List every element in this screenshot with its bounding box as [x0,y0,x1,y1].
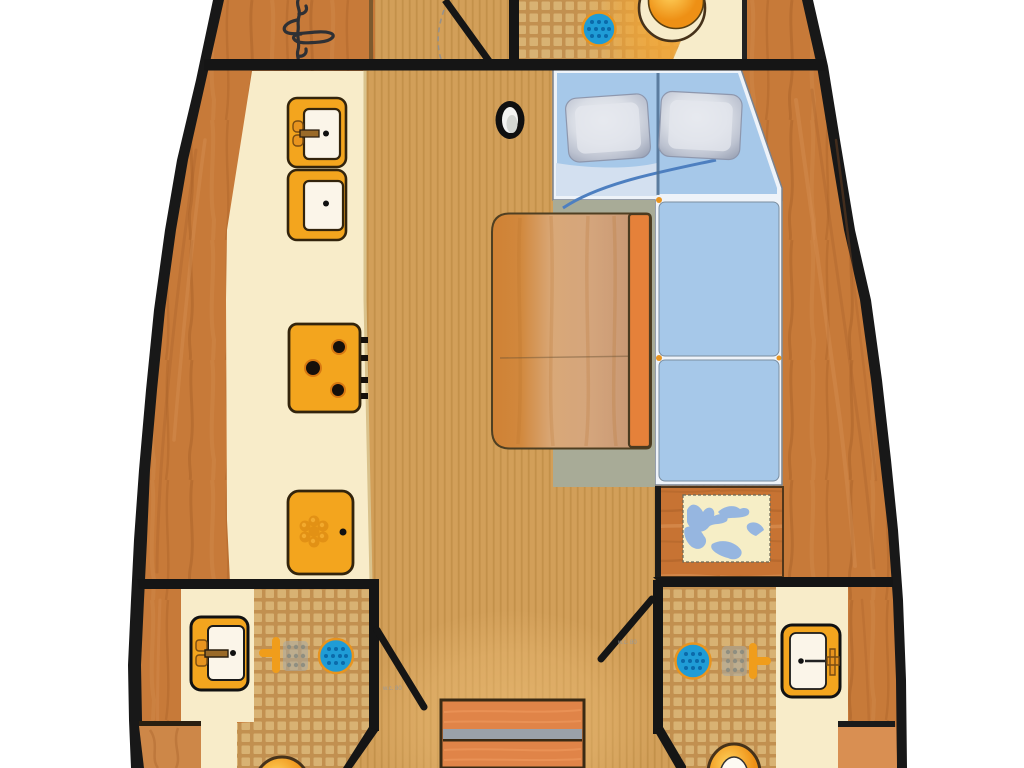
svg-text:w.c. 80: w.c. 80 [382,686,402,692]
svg-text:w.c. 80: w.c. 80 [617,640,637,646]
